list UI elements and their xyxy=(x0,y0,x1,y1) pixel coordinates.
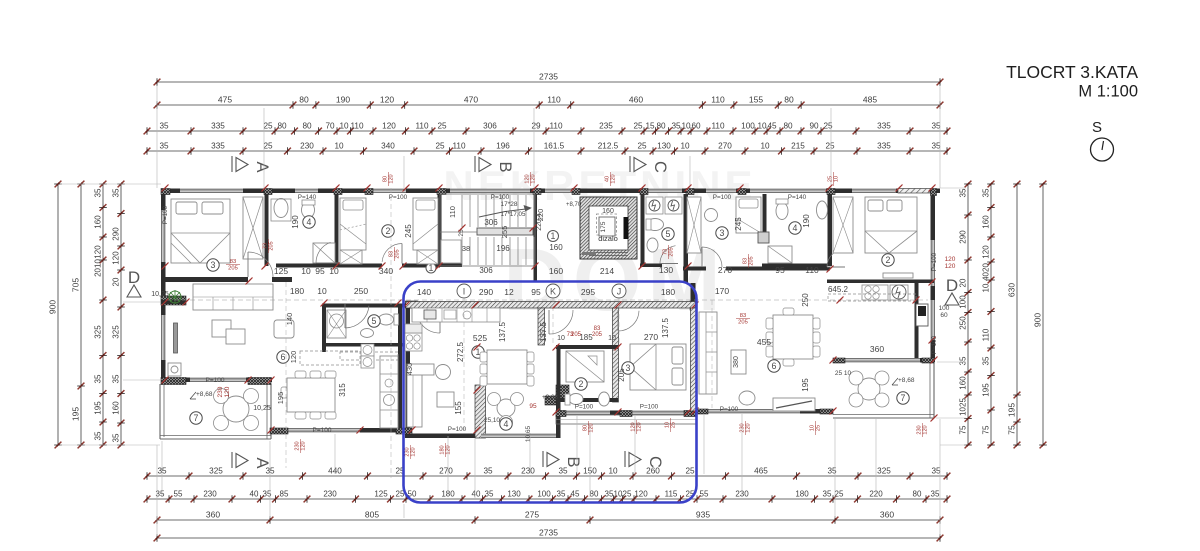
svg-text:3: 3 xyxy=(211,260,216,270)
svg-text:115: 115 xyxy=(665,490,678,499)
svg-text:1: 1 xyxy=(429,263,434,273)
svg-text:335: 335 xyxy=(211,122,225,131)
svg-text:35: 35 xyxy=(263,490,272,499)
svg-text:275: 275 xyxy=(525,510,539,520)
svg-text:10,65: 10,65 xyxy=(525,425,532,442)
svg-text:25: 25 xyxy=(435,142,445,151)
svg-text:455: 455 xyxy=(757,337,771,347)
svg-text:25: 25 xyxy=(671,422,677,428)
svg-text:83: 83 xyxy=(740,313,746,319)
svg-text:+8,68: +8,68 xyxy=(542,394,558,401)
svg-text:35: 35 xyxy=(931,122,941,131)
svg-text:935: 935 xyxy=(696,510,710,520)
svg-text:+8,70: +8,70 xyxy=(566,202,582,208)
svg-text:35: 35 xyxy=(94,374,103,383)
svg-text:38: 38 xyxy=(462,244,470,253)
svg-text:120: 120 xyxy=(637,422,643,431)
svg-text:3: 3 xyxy=(626,363,631,373)
svg-text:100: 100 xyxy=(741,122,755,131)
svg-text:205: 205 xyxy=(669,247,675,256)
svg-text:55: 55 xyxy=(700,490,709,499)
svg-text:215: 215 xyxy=(791,142,805,151)
svg-text:TLOCRT 3.KATA: TLOCRT 3.KATA xyxy=(1006,62,1138,82)
svg-text:90: 90 xyxy=(809,122,819,131)
svg-text:P=100: P=100 xyxy=(713,194,732,201)
svg-text:137.5: 137.5 xyxy=(661,317,670,338)
svg-text:235: 235 xyxy=(599,122,613,131)
svg-text:C: C xyxy=(651,161,669,173)
svg-text:17*28: 17*28 xyxy=(501,201,518,208)
svg-text:110: 110 xyxy=(711,122,724,131)
svg-text:10: 10 xyxy=(608,335,616,342)
svg-text:10: 10 xyxy=(982,283,991,292)
svg-text:125: 125 xyxy=(374,490,388,499)
svg-text:180: 180 xyxy=(290,286,304,296)
svg-text:130: 130 xyxy=(507,490,521,499)
svg-text:17*17,05: 17*17,05 xyxy=(501,211,526,218)
svg-text:100: 100 xyxy=(939,305,950,312)
svg-text:80: 80 xyxy=(783,122,793,131)
svg-text:120: 120 xyxy=(94,245,103,259)
svg-text:J: J xyxy=(617,287,622,297)
svg-text:80: 80 xyxy=(299,95,309,105)
svg-text:430: 430 xyxy=(405,363,414,376)
svg-text:315: 315 xyxy=(338,383,347,397)
svg-text:10,25: 10,25 xyxy=(253,405,271,412)
svg-text:60: 60 xyxy=(691,122,701,131)
svg-text:29: 29 xyxy=(531,122,541,131)
svg-text:B: B xyxy=(496,161,514,172)
svg-text:270: 270 xyxy=(644,332,658,342)
svg-text:95: 95 xyxy=(531,287,541,297)
svg-text:120: 120 xyxy=(301,441,307,450)
svg-text:325: 325 xyxy=(877,467,891,476)
svg-text:255: 255 xyxy=(500,226,509,239)
svg-text:190: 190 xyxy=(336,95,350,105)
svg-text:245: 245 xyxy=(734,217,743,231)
svg-text:25: 25 xyxy=(823,122,833,131)
svg-text:10: 10 xyxy=(608,467,618,476)
svg-text:110: 110 xyxy=(415,122,428,131)
svg-text:2010: 2010 xyxy=(94,259,103,277)
svg-text:35: 35 xyxy=(112,374,121,383)
svg-text:360: 360 xyxy=(206,510,220,520)
svg-text:140: 140 xyxy=(285,313,294,326)
svg-text:35: 35 xyxy=(557,490,566,499)
svg-text:110: 110 xyxy=(547,95,561,105)
svg-text:10: 10 xyxy=(317,286,327,296)
svg-text:120: 120 xyxy=(945,256,956,263)
svg-text:110: 110 xyxy=(805,265,819,275)
svg-text:P=100: P=100 xyxy=(313,427,332,434)
svg-text:S: S xyxy=(1092,119,1102,136)
svg-text:1: 1 xyxy=(551,231,556,241)
svg-text:160: 160 xyxy=(959,376,968,390)
svg-text:190: 190 xyxy=(291,215,300,229)
svg-text:83: 83 xyxy=(230,259,236,265)
svg-text:80: 80 xyxy=(784,95,794,105)
svg-text:35: 35 xyxy=(982,188,991,197)
svg-text:306: 306 xyxy=(483,122,497,131)
svg-text:120: 120 xyxy=(382,122,396,131)
svg-text:110: 110 xyxy=(448,206,457,218)
svg-text:K: K xyxy=(550,287,556,297)
svg-text:20: 20 xyxy=(112,277,121,286)
svg-text:80: 80 xyxy=(656,122,666,131)
svg-text:230: 230 xyxy=(203,490,217,499)
svg-text:P=100: P=100 xyxy=(206,377,225,384)
svg-text:175: 175 xyxy=(600,221,607,232)
svg-text:120: 120 xyxy=(945,263,956,270)
svg-text:170: 170 xyxy=(715,286,729,296)
svg-text:35: 35 xyxy=(112,188,121,197)
svg-text:15: 15 xyxy=(645,122,655,131)
svg-text:35: 35 xyxy=(558,467,568,476)
svg-text:270: 270 xyxy=(718,142,732,151)
svg-text:120: 120 xyxy=(389,174,395,183)
svg-text:A: A xyxy=(253,457,271,468)
svg-text:2: 2 xyxy=(386,226,391,236)
svg-text:25,10: 25,10 xyxy=(484,417,500,424)
svg-text:100: 100 xyxy=(537,490,551,499)
svg-text:35: 35 xyxy=(159,142,169,151)
svg-text:120: 120 xyxy=(746,423,752,432)
svg-text:160: 160 xyxy=(982,215,991,229)
svg-text:155: 155 xyxy=(749,95,763,105)
svg-text:272.5: 272.5 xyxy=(456,341,465,362)
svg-text:140: 140 xyxy=(417,287,431,297)
svg-text:340: 340 xyxy=(381,142,395,151)
svg-text:10: 10 xyxy=(557,335,565,342)
svg-text:25: 25 xyxy=(263,122,273,131)
svg-text:306: 306 xyxy=(479,266,493,275)
svg-text:270: 270 xyxy=(439,467,453,476)
svg-text:335: 335 xyxy=(877,142,891,151)
svg-text:195: 195 xyxy=(276,392,285,405)
svg-text:120: 120 xyxy=(982,245,991,259)
svg-text:325: 325 xyxy=(94,325,103,339)
svg-text:196: 196 xyxy=(496,244,510,253)
svg-text:85: 85 xyxy=(280,490,289,499)
svg-text:45: 45 xyxy=(767,122,777,131)
svg-text:80: 80 xyxy=(302,122,312,131)
svg-text:250: 250 xyxy=(354,286,368,296)
svg-text:380: 380 xyxy=(733,356,740,368)
svg-text:25: 25 xyxy=(437,122,447,131)
svg-text:290: 290 xyxy=(479,287,493,297)
svg-text:645.2: 645.2 xyxy=(828,285,849,294)
svg-text:475: 475 xyxy=(218,95,232,105)
svg-text:12: 12 xyxy=(504,287,514,297)
svg-text:7: 7 xyxy=(901,393,906,403)
svg-text:35: 35 xyxy=(112,433,121,442)
svg-text:250: 250 xyxy=(959,316,968,330)
svg-text:100: 100 xyxy=(959,295,968,309)
svg-text:180: 180 xyxy=(661,287,675,297)
svg-text:120: 120 xyxy=(411,447,417,456)
svg-text:214: 214 xyxy=(600,266,614,276)
svg-text:230: 230 xyxy=(521,467,535,476)
svg-text:55: 55 xyxy=(174,490,183,499)
svg-text:P=100: P=100 xyxy=(931,335,938,354)
svg-text:110: 110 xyxy=(549,122,562,131)
svg-text:335: 335 xyxy=(211,142,225,151)
svg-text:25: 25 xyxy=(816,425,822,431)
svg-text:900: 900 xyxy=(1033,313,1043,327)
svg-text:35: 35 xyxy=(931,467,941,476)
svg-text:95: 95 xyxy=(529,403,537,410)
svg-text:525: 525 xyxy=(473,333,487,343)
svg-text:P=100: P=100 xyxy=(491,194,510,201)
svg-text:10: 10 xyxy=(757,122,767,131)
svg-text:460: 460 xyxy=(629,95,643,105)
svg-text:180: 180 xyxy=(795,490,809,499)
svg-text:95: 95 xyxy=(775,265,785,275)
svg-text:155: 155 xyxy=(454,401,463,415)
svg-text:160: 160 xyxy=(94,215,103,229)
svg-text:2: 2 xyxy=(579,379,584,389)
svg-text:P=100: P=100 xyxy=(575,404,594,411)
svg-text:110: 110 xyxy=(982,328,991,341)
svg-text:190: 190 xyxy=(802,214,811,228)
svg-text:2735: 2735 xyxy=(539,528,558,538)
svg-text:35: 35 xyxy=(483,467,493,476)
svg-text:205: 205 xyxy=(617,368,626,382)
svg-text:120: 120 xyxy=(224,386,231,397)
svg-text:M 1:100: M 1:100 xyxy=(1078,83,1138,101)
svg-text:P=100: P=100 xyxy=(931,252,938,271)
svg-text:4: 4 xyxy=(307,217,312,227)
svg-text:120: 120 xyxy=(531,174,537,183)
svg-text:dizalo: dizalo xyxy=(598,234,618,243)
svg-text:325: 325 xyxy=(112,325,121,339)
svg-text:137.5: 137.5 xyxy=(539,321,548,342)
svg-text:2735: 2735 xyxy=(539,72,558,82)
svg-text:P=140: P=140 xyxy=(788,194,807,201)
svg-text:290: 290 xyxy=(112,227,121,241)
svg-text:+8,68: +8,68 xyxy=(196,391,213,398)
svg-text:35: 35 xyxy=(931,142,941,151)
svg-text:25: 25 xyxy=(685,467,695,476)
svg-text:I: I xyxy=(463,287,466,297)
svg-text:35: 35 xyxy=(959,188,968,197)
svg-text:205: 205 xyxy=(571,332,582,338)
svg-text:10: 10 xyxy=(339,122,349,131)
svg-text:75: 75 xyxy=(959,425,968,434)
svg-text:125: 125 xyxy=(274,266,288,276)
svg-text:60: 60 xyxy=(940,312,948,319)
svg-text:P=100: P=100 xyxy=(389,194,408,201)
svg-text:705: 705 xyxy=(71,278,81,292)
svg-text:900: 900 xyxy=(48,300,58,314)
svg-text:10: 10 xyxy=(760,142,770,151)
svg-text:160: 160 xyxy=(549,243,563,252)
svg-text:3: 3 xyxy=(720,228,725,238)
svg-text:220: 220 xyxy=(536,209,545,222)
svg-text:35: 35 xyxy=(485,490,494,499)
svg-text:120: 120 xyxy=(589,423,595,432)
svg-text:35: 35 xyxy=(827,467,837,476)
svg-text:2: 2 xyxy=(886,255,891,265)
svg-text:25: 25 xyxy=(835,490,844,499)
svg-text:35: 35 xyxy=(159,122,169,131)
svg-text:195: 195 xyxy=(801,378,810,392)
svg-text:130: 130 xyxy=(659,265,673,275)
svg-text:120: 120 xyxy=(289,351,298,364)
svg-text:35: 35 xyxy=(982,356,991,365)
svg-text:4020: 4020 xyxy=(982,263,991,281)
svg-text:35: 35 xyxy=(671,122,681,131)
svg-text:35: 35 xyxy=(823,490,832,499)
svg-text:4: 4 xyxy=(504,419,509,429)
svg-text:161.5: 161.5 xyxy=(544,142,565,151)
svg-text:10: 10 xyxy=(334,142,344,151)
svg-text:160: 160 xyxy=(602,208,614,215)
svg-text:195: 195 xyxy=(71,407,81,421)
svg-text:B: B xyxy=(564,456,582,467)
svg-text:+8,68: +8,68 xyxy=(898,377,915,384)
svg-text:35: 35 xyxy=(931,490,940,499)
svg-text:205: 205 xyxy=(269,241,275,250)
svg-text:45: 45 xyxy=(571,490,580,499)
svg-text:120: 120 xyxy=(446,445,452,454)
svg-text:306: 306 xyxy=(484,218,498,227)
svg-text:335: 335 xyxy=(877,122,891,131)
svg-text:35: 35 xyxy=(94,431,103,440)
svg-text:230: 230 xyxy=(300,142,314,151)
svg-text:290: 290 xyxy=(959,230,968,244)
svg-text:25: 25 xyxy=(825,142,835,151)
svg-text:25: 25 xyxy=(633,122,643,131)
svg-text:805: 805 xyxy=(365,510,379,520)
svg-text:230: 230 xyxy=(217,386,224,397)
svg-text:120: 120 xyxy=(923,425,929,434)
svg-text:120: 120 xyxy=(380,95,394,105)
svg-text:120: 120 xyxy=(634,490,648,499)
svg-text:110: 110 xyxy=(711,95,725,105)
svg-text:75: 75 xyxy=(982,425,991,434)
svg-text:485: 485 xyxy=(863,95,877,105)
svg-text:360: 360 xyxy=(870,344,884,354)
svg-text:5: 5 xyxy=(666,229,671,239)
svg-text:20: 20 xyxy=(959,278,968,287)
svg-text:4: 4 xyxy=(793,223,798,233)
svg-text:P=140: P=140 xyxy=(298,194,317,201)
svg-text:80: 80 xyxy=(590,490,599,499)
svg-text:205: 205 xyxy=(395,249,401,258)
svg-text:10: 10 xyxy=(301,266,311,276)
svg-text:470: 470 xyxy=(464,95,478,105)
svg-text:95: 95 xyxy=(315,266,325,276)
svg-text:P=100: P=100 xyxy=(162,205,169,224)
svg-text:465: 465 xyxy=(754,467,768,476)
svg-text:6: 6 xyxy=(281,352,286,362)
svg-text:5: 5 xyxy=(372,316,377,326)
svg-text:205: 205 xyxy=(228,266,238,272)
svg-text:10: 10 xyxy=(834,176,840,182)
svg-text:40: 40 xyxy=(472,490,481,499)
svg-text:205: 205 xyxy=(592,332,603,338)
svg-text:212.5: 212.5 xyxy=(598,142,619,151)
svg-text:120: 120 xyxy=(611,174,617,183)
svg-text:25: 25 xyxy=(637,142,647,151)
svg-text:325: 325 xyxy=(209,467,223,476)
svg-text:7: 7 xyxy=(194,413,199,423)
svg-text:35: 35 xyxy=(94,188,103,197)
svg-text:80: 80 xyxy=(277,122,287,131)
svg-text:130: 130 xyxy=(657,142,671,151)
svg-text:630: 630 xyxy=(1007,283,1017,297)
svg-text:360: 360 xyxy=(880,510,894,520)
svg-text:195: 195 xyxy=(1007,403,1017,417)
svg-text:70: 70 xyxy=(325,122,335,131)
svg-text:10,25: 10,25 xyxy=(151,291,169,298)
svg-text:270: 270 xyxy=(718,265,732,275)
svg-text:160: 160 xyxy=(549,266,563,276)
svg-text:295: 295 xyxy=(581,287,595,297)
svg-text:110: 110 xyxy=(350,122,363,131)
svg-text:C: C xyxy=(646,456,664,468)
svg-text:P=100: P=100 xyxy=(640,404,659,411)
svg-text:195: 195 xyxy=(94,401,103,415)
svg-text:196: 196 xyxy=(496,142,510,151)
svg-text:195: 195 xyxy=(982,383,991,397)
svg-text:25: 25 xyxy=(623,490,632,499)
svg-text:245: 245 xyxy=(404,224,413,238)
svg-text:160: 160 xyxy=(112,401,121,415)
svg-text:137.5: 137.5 xyxy=(498,321,507,342)
svg-text:6: 6 xyxy=(772,361,777,371)
svg-text:10: 10 xyxy=(680,142,690,151)
svg-text:P=100: P=100 xyxy=(720,406,739,413)
svg-text:25 10: 25 10 xyxy=(835,370,852,377)
svg-text:10: 10 xyxy=(681,122,691,131)
svg-text:205: 205 xyxy=(749,256,755,265)
svg-text:35: 35 xyxy=(959,356,968,365)
svg-text:205: 205 xyxy=(738,320,748,326)
svg-text:110: 110 xyxy=(452,142,465,151)
svg-text:1025: 1025 xyxy=(959,398,968,416)
svg-text:40: 40 xyxy=(250,490,259,499)
svg-text:120: 120 xyxy=(112,251,121,265)
svg-text:80: 80 xyxy=(913,490,922,499)
svg-text:230: 230 xyxy=(323,490,337,499)
svg-text:75: 75 xyxy=(1007,425,1017,435)
svg-text:25: 25 xyxy=(263,142,273,151)
svg-text:A: A xyxy=(253,161,271,172)
